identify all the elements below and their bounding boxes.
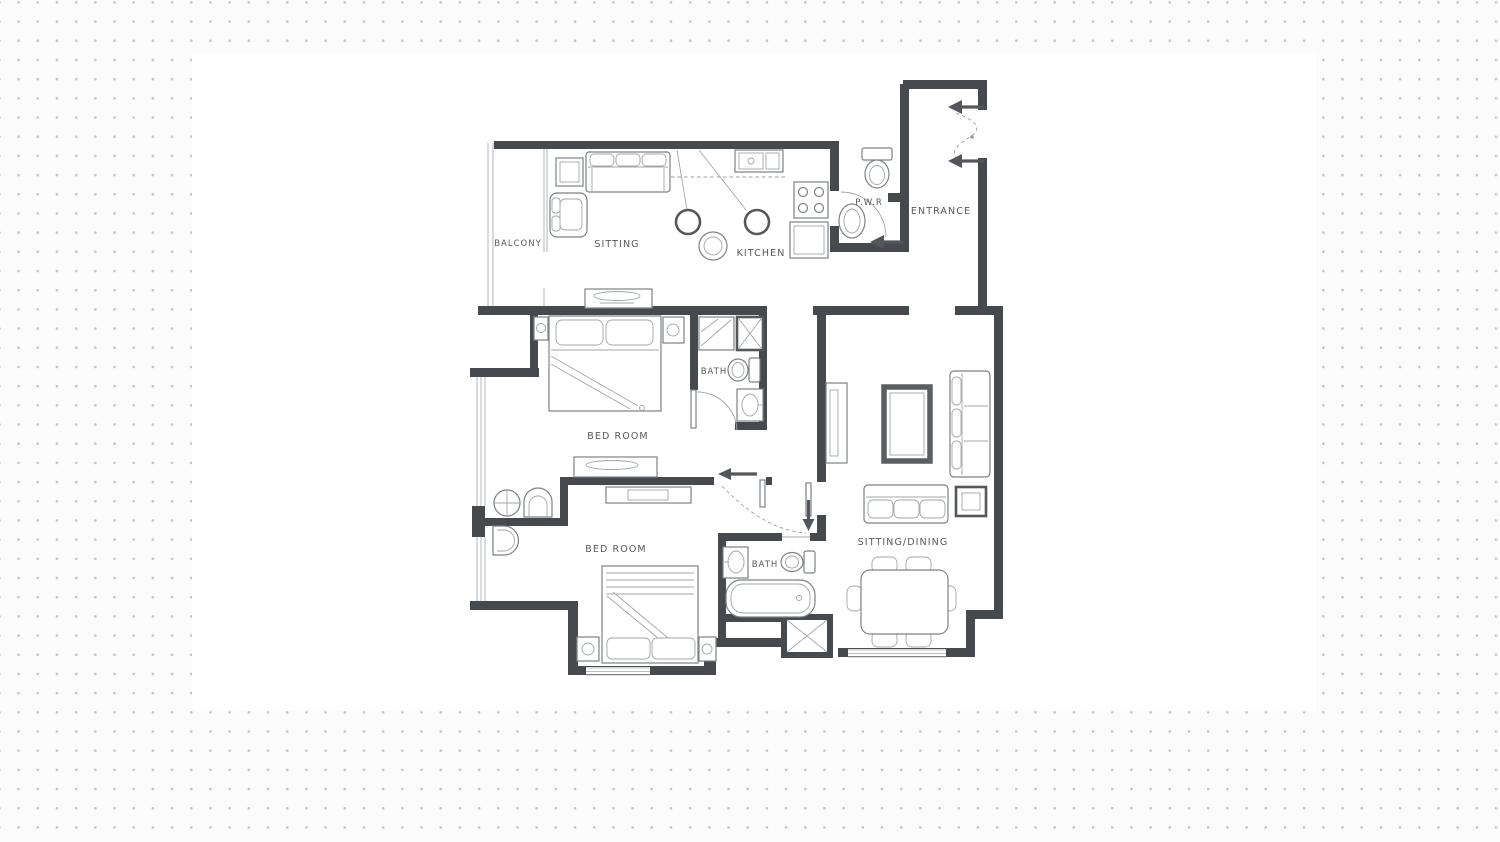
- sitting-label: SITTING: [594, 239, 639, 250]
- door-arrow-icon: [803, 519, 815, 531]
- nightstand-icon: [534, 317, 548, 340]
- bedroom1-group: [534, 316, 684, 477]
- toilet-icon: [862, 148, 892, 188]
- kitchen-sink-icon: [735, 150, 783, 172]
- balcony-label: BALCONY: [494, 239, 542, 249]
- nightstand-icon: [577, 637, 599, 661]
- sofa-icon: [864, 485, 948, 523]
- entry-arrow-icon: [948, 154, 962, 168]
- sofa-icon: [586, 152, 670, 192]
- dining-table-icon: [847, 557, 956, 647]
- washbasin-icon: [723, 547, 748, 578]
- stove-icon: [794, 182, 828, 218]
- pouf-icon: [493, 526, 519, 555]
- pedestal-sink-icon: [839, 204, 865, 238]
- side-table-icon: [956, 487, 986, 516]
- coffee-table-icon: [884, 387, 930, 461]
- dotted-background: BALCONY SITTING KITCHEN P.W.R ENTRANCE B…: [0, 0, 1500, 842]
- nightstand-icon: [699, 637, 716, 661]
- tv-unit-icon: [826, 383, 847, 463]
- toilet-icon: [728, 358, 760, 382]
- bed-icon: [602, 566, 698, 663]
- ceiling-fan-icon: [494, 490, 520, 516]
- dresser-icon: [574, 457, 657, 477]
- chaise-sofa-icon: [950, 371, 990, 477]
- sitting-group: [550, 152, 670, 308]
- entry-arrow-icon: [948, 100, 962, 114]
- bath2-label: BATH: [752, 560, 779, 570]
- wardrobe-arch-icon: [524, 488, 552, 517]
- tv-cabinet-icon: [606, 487, 691, 503]
- pwr-label: P.W.R: [855, 198, 883, 208]
- entrance-label: ENTRANCE: [911, 206, 971, 217]
- bedroom2-group: [493, 487, 716, 663]
- bedroom2-label: BED ROOM: [585, 544, 646, 555]
- floorplan: BALCONY SITTING KITCHEN P.W.R ENTRANCE B…: [466, 76, 1008, 688]
- tv-console-icon: [585, 289, 652, 308]
- bath1-label: BATH: [701, 367, 728, 377]
- bath2-group: [723, 537, 815, 617]
- kitchen-label: KITCHEN: [737, 248, 786, 259]
- closet-icon: [699, 317, 734, 350]
- door-arrow-icon: [718, 468, 731, 480]
- bedroom1-label: BED ROOM: [587, 431, 648, 442]
- bath1-door: [691, 390, 737, 430]
- floorplan-svg: BALCONY SITTING KITCHEN P.W.R ENTRANCE B…: [466, 76, 1008, 688]
- bathtub-icon: [726, 580, 815, 617]
- side-table-icon: [556, 158, 583, 186]
- kitchen-group: [658, 150, 828, 260]
- sitting-dining-group: [826, 371, 990, 647]
- toilet-icon: [781, 551, 815, 573]
- pwr-group: [839, 148, 892, 238]
- bed-icon: [549, 316, 661, 411]
- kitchen-counter-icon: [790, 222, 828, 258]
- nightstand-icon: [663, 317, 684, 343]
- sitting-dining-label: SITTING/DINING: [858, 537, 949, 548]
- washbasin-icon: [737, 389, 763, 421]
- armchair-icon: [550, 193, 587, 237]
